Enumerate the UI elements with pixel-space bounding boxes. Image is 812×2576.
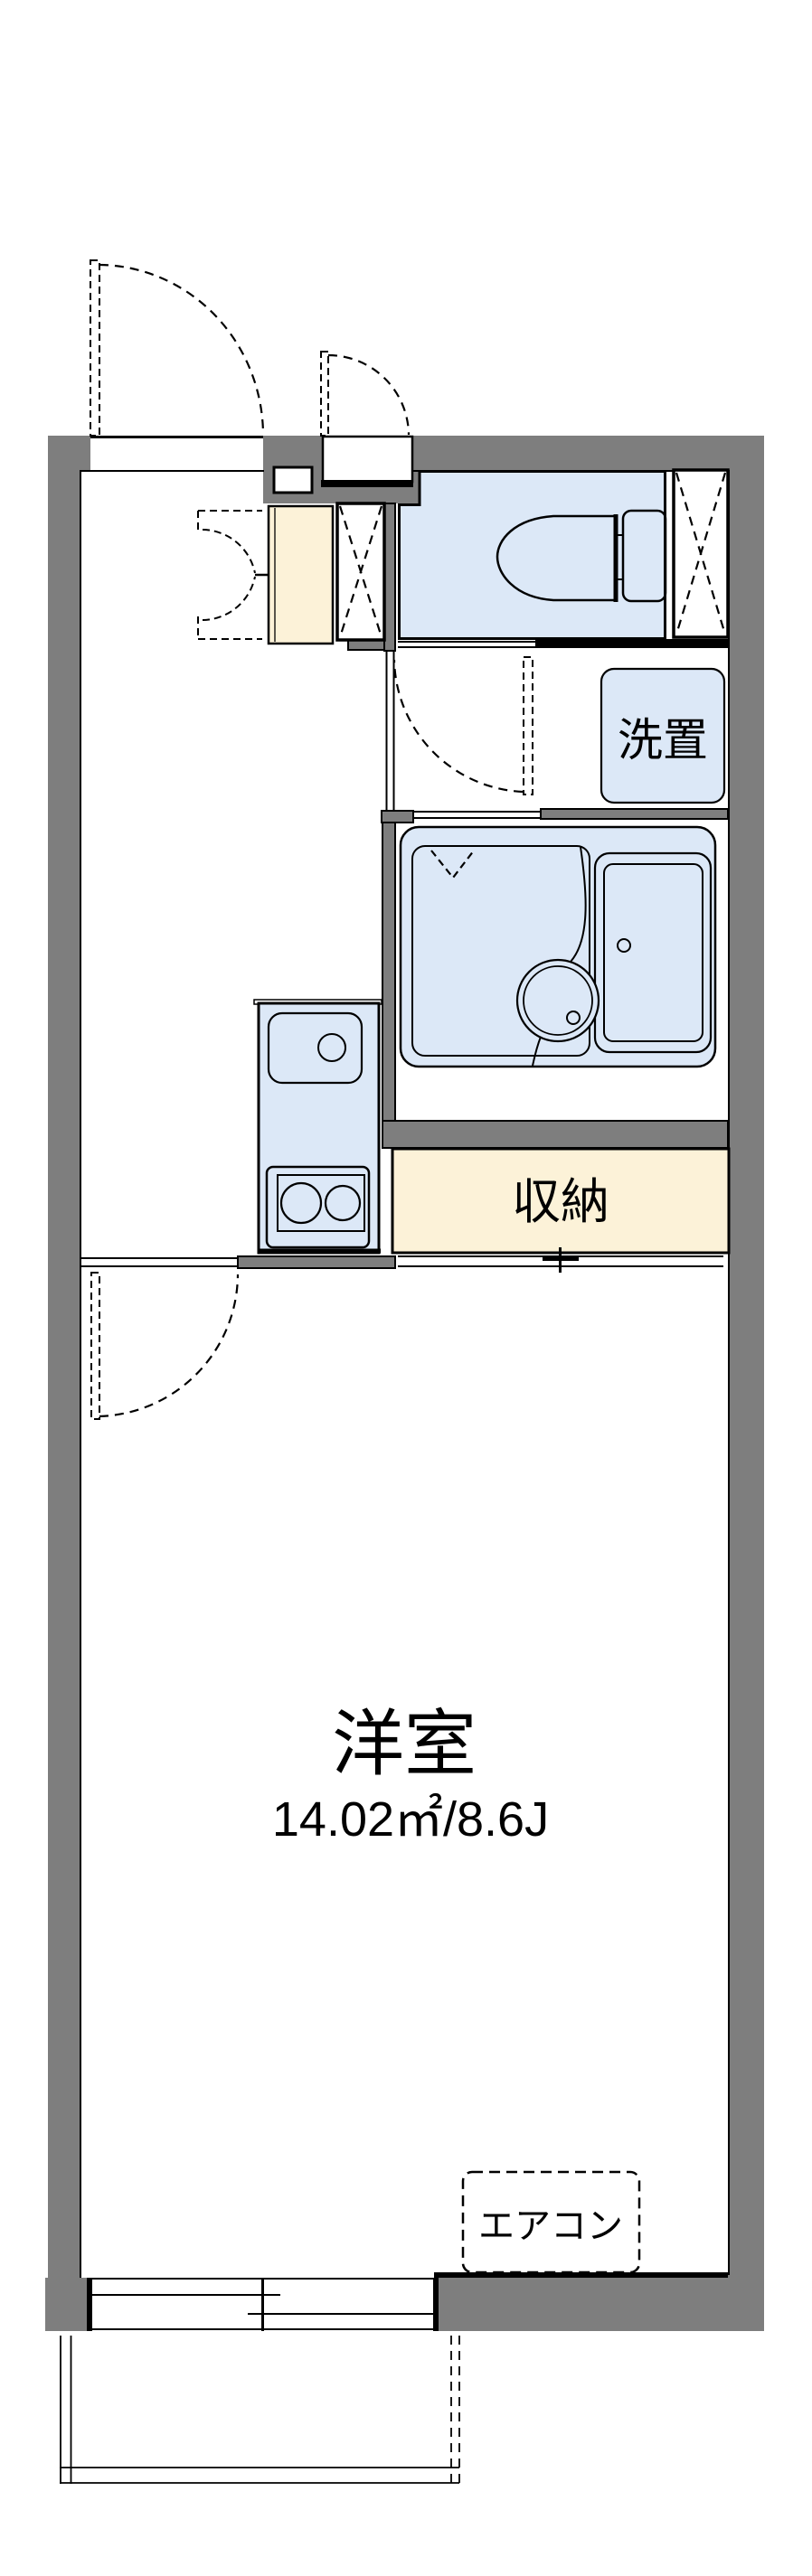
balcony <box>60 2336 459 2484</box>
pipe-space-toilet <box>674 470 728 637</box>
toilet-room <box>400 472 666 639</box>
service-door-swing <box>321 352 409 436</box>
toilet-door-swing <box>394 657 533 794</box>
window-sliding <box>87 2278 439 2331</box>
aircon-box: エアコン <box>463 2172 639 2272</box>
floor-plan-drawing: 洗置 <box>0 0 812 2576</box>
wash-basin <box>517 960 599 1041</box>
kitchen-unit <box>254 1000 382 1253</box>
shoe-cabinet <box>269 506 333 644</box>
room-entry-door-swing <box>91 1273 238 1419</box>
room-name-label: 洋室 <box>332 1704 477 1784</box>
washer-space-box: 洗置 <box>601 669 724 803</box>
storage-label: 収納 <box>512 1175 609 1229</box>
pipe-space-entrance <box>337 503 384 640</box>
meter-box-niche <box>321 437 413 487</box>
storage-closet: 収納 <box>392 1149 729 1253</box>
entrance-door-swing <box>90 260 263 436</box>
floor-plan: 洗置 <box>0 0 812 2576</box>
bathroom <box>401 827 715 1067</box>
washer-space-label: 洗置 <box>618 715 708 766</box>
wall-niche <box>274 467 312 493</box>
aircon-label: エアコン <box>478 2206 623 2246</box>
room-size-label: 14.02㎡/8.6J <box>272 1792 549 1847</box>
shoe-cabinet-doors <box>198 511 269 639</box>
